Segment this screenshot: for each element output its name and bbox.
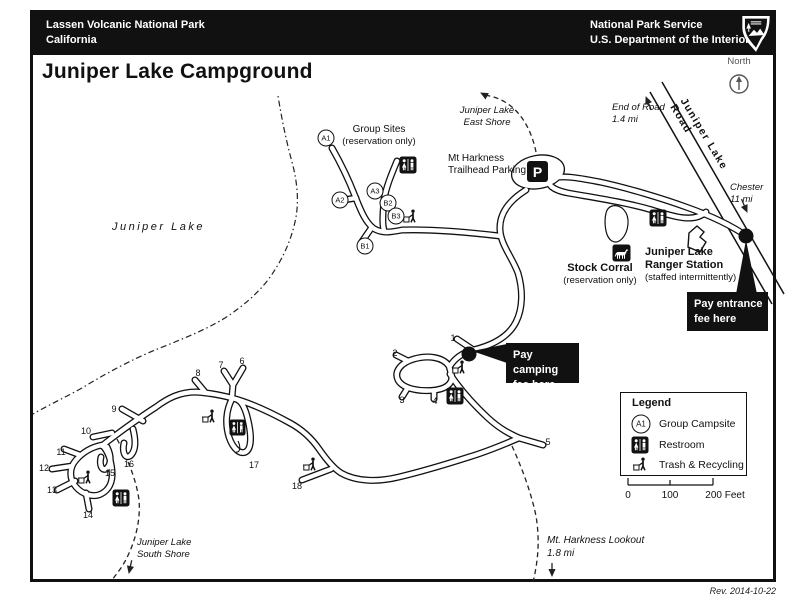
ranger-station-label: Juniper Lake <box>645 246 713 258</box>
restroom-icon <box>650 210 667 227</box>
pay-camping-callout: Pay camping fee here <box>506 343 579 383</box>
legend-label-trash: Trash & Recycling <box>659 459 744 471</box>
north-label: North <box>727 56 750 68</box>
parking-icon: P <box>527 161 548 182</box>
lookout-distance: 1.8 mi <box>547 548 574 560</box>
site-number: 11 <box>56 447 65 457</box>
lookout-label: Mt. Harkness Lookout <box>547 535 644 547</box>
lookout-trail <box>512 446 556 582</box>
map-page: Lassen Volcanic National Park California… <box>0 0 800 600</box>
restroom-icon <box>229 419 245 435</box>
group-site-marker-a2: A2 <box>332 192 349 209</box>
scale-mid-label: 100 <box>662 490 679 502</box>
group-site-marker-b3: B3 <box>388 208 405 225</box>
legend-title: Legend <box>632 397 671 409</box>
site-number: 7 <box>218 360 223 370</box>
group-site-marker-a1: A1 <box>318 130 335 147</box>
legend-label-group-campsite: Group Campsite <box>659 418 735 430</box>
site-number: 15 <box>105 468 115 478</box>
site-number: 3 <box>399 395 404 405</box>
camping-fee-dot <box>462 347 477 362</box>
scale-start-label: 0 <box>625 490 631 502</box>
pay-entrance-callout: Pay entrance fee here <box>687 292 768 331</box>
site-number: 4 <box>432 396 437 406</box>
site-number: 14 <box>83 510 93 520</box>
loop-island <box>605 206 628 242</box>
trailhead-parking-label: Mt Harkness <box>448 153 504 165</box>
site-number: 1 <box>450 333 455 343</box>
stock-corral-sublabel: (reservation only) <box>563 275 636 287</box>
group-sites-sublabel: (reservation only) <box>342 136 415 148</box>
trash-recycling-icon <box>403 210 415 223</box>
site-number: 9 <box>111 404 116 414</box>
ranger-station-sublabel: (staffed intermittently) <box>645 272 736 284</box>
trailhead-parking-label2: Trailhead Parking <box>448 165 526 177</box>
restroom-icon <box>113 490 130 507</box>
stock-corral-label: Stock Corral <box>567 262 632 274</box>
revision-date: Rev. 2014-10-22 <box>660 586 776 596</box>
end-of-road-distance: 1.4 mi <box>612 114 638 126</box>
trash-recycling-icon <box>303 458 315 471</box>
site-number: 5 <box>545 437 550 447</box>
map-graphics <box>0 0 800 600</box>
south-shore-label: Juniper Lake <box>137 537 191 549</box>
east-shore-label2: East Shore <box>464 117 511 129</box>
site-number: 13 <box>47 485 57 495</box>
site-number: 10 <box>81 426 91 436</box>
site-number: 12 <box>39 463 49 473</box>
site-number: 17 <box>249 460 259 470</box>
group-sites-label: Group Sites <box>353 124 406 136</box>
restroom-icon <box>447 388 464 405</box>
scale-end-label: 200 Feet <box>705 490 744 502</box>
restroom-icon <box>400 157 417 174</box>
site-number: 2 <box>392 348 397 358</box>
legend-label-restroom: Restroom <box>659 439 705 451</box>
north-arrow-icon <box>730 75 748 93</box>
site-number: 18 <box>292 481 302 491</box>
group-campsite-symbol: A1 <box>632 415 651 434</box>
lake-shoreline <box>33 96 297 414</box>
group-site-marker-b1: B1 <box>357 238 374 255</box>
east-shore-label: Juniper Lake <box>460 105 514 117</box>
south-shore-label2: South Shore <box>137 549 190 561</box>
stock-corral-icon <box>613 245 631 262</box>
trash-recycling-icon <box>78 471 90 484</box>
site-number: 6 <box>239 356 244 366</box>
scale-bar <box>628 478 713 485</box>
site-number: 8 <box>195 368 200 378</box>
ranger-station-label2: Ranger Station <box>645 259 723 271</box>
lake-name-label: Juniper Lake <box>112 221 205 233</box>
trash-recycling-icon <box>202 410 214 423</box>
chester-distance: 11 mi <box>730 194 753 206</box>
chester-label: Chester <box>730 182 763 194</box>
end-of-road-label: End of Road <box>612 102 665 114</box>
site-number: 16 <box>124 459 134 469</box>
